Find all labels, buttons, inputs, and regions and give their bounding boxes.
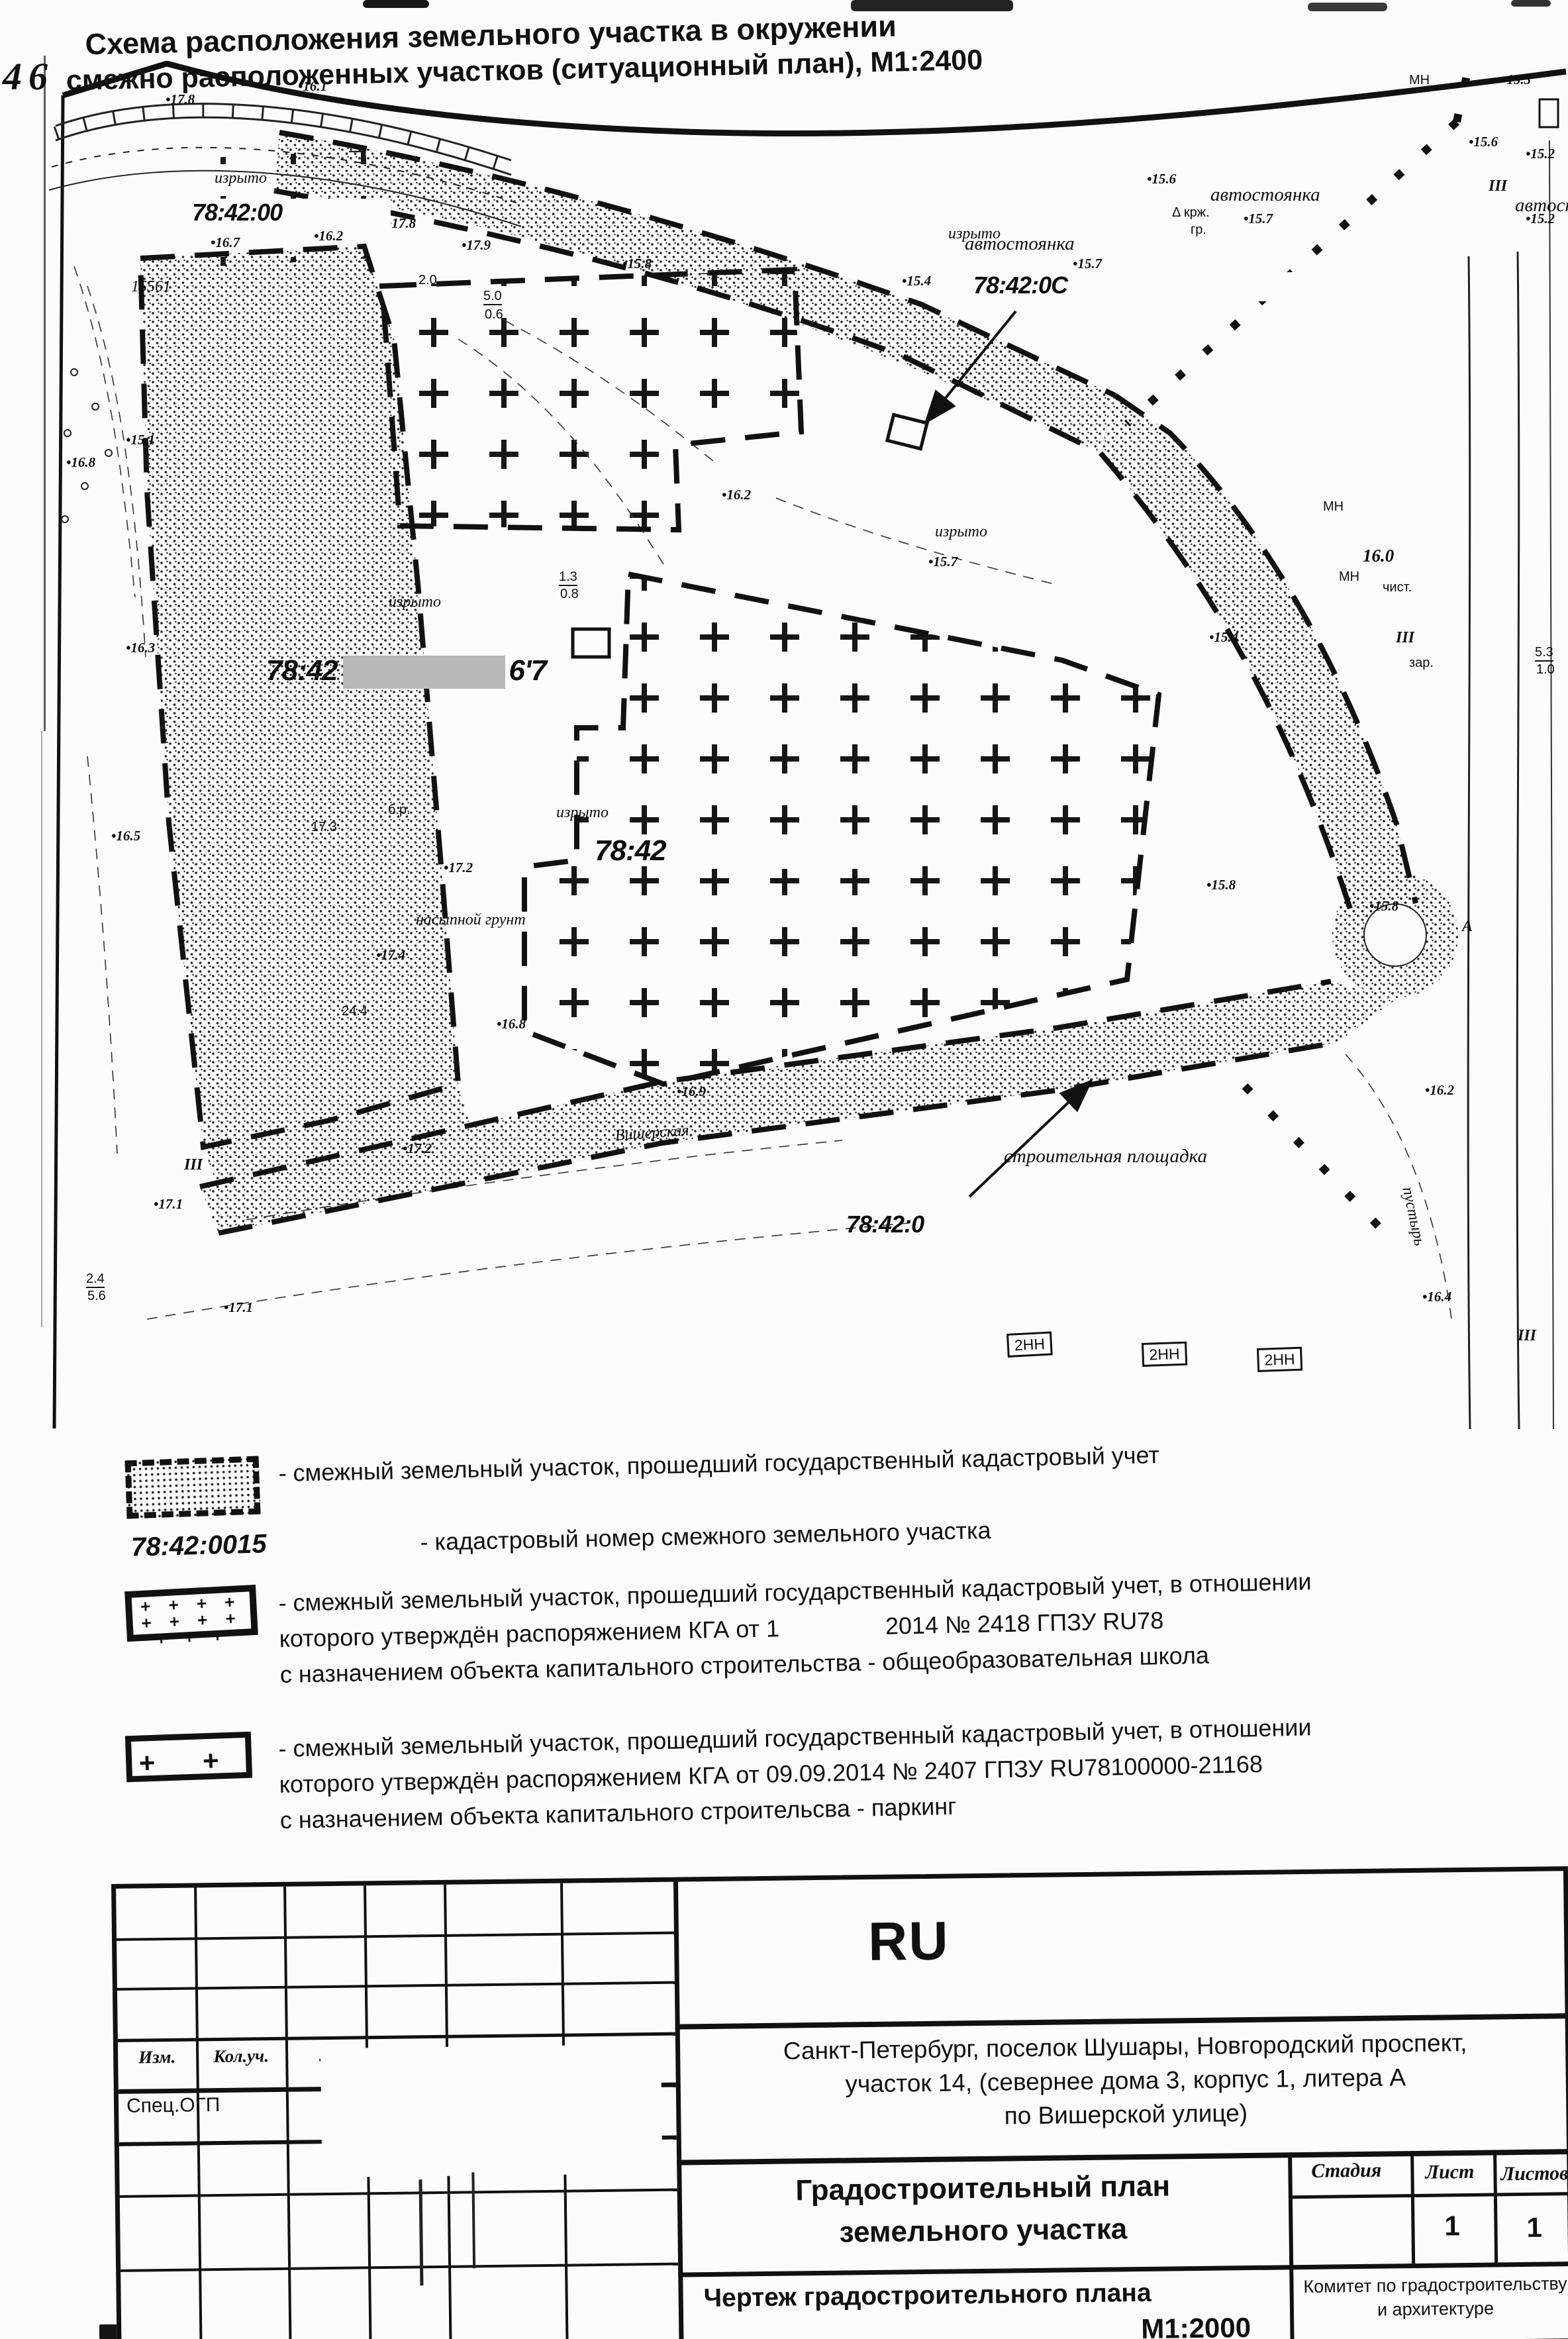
title-block: Изм.Кол.уч.Л№ докПодписьДата Спец.ОГП Пи… xyxy=(111,1866,1568,2339)
map-label: •15.8 xyxy=(1206,877,1236,893)
sheet-value: 1 xyxy=(1444,2210,1460,2242)
redacted-area xyxy=(671,836,890,869)
sheets-value: 1 xyxy=(1526,2212,1542,2244)
map-label: 5.0 xyxy=(483,289,502,305)
map-label: •16.8 xyxy=(66,454,95,471)
map-label: 78:42:0C xyxy=(973,272,1311,301)
map-label: •17.2 xyxy=(403,1140,432,1157)
map-label: зар. xyxy=(1409,656,1434,671)
map-label: МН xyxy=(1323,499,1344,515)
map-label: •16.8 xyxy=(497,1016,526,1032)
map-label: •15.8 xyxy=(1369,898,1398,915)
map-label: •17.2 xyxy=(444,860,473,876)
grid-line xyxy=(117,1981,675,1991)
map-label: 2НН xyxy=(1257,1347,1302,1372)
map-label: •15.6 xyxy=(1469,134,1498,150)
redacted-area xyxy=(343,656,505,689)
gpzu-document-number: RU xyxy=(868,1911,950,1973)
map-label: 2.0 xyxy=(418,273,437,288)
map-label: 78:42:00 xyxy=(188,199,391,226)
map-label: 78:426'7 xyxy=(266,654,546,689)
map-label: III xyxy=(184,1156,203,1174)
map-label: 2.4 xyxy=(86,1271,105,1288)
grid-line xyxy=(120,2189,677,2198)
map-label: автостоянка xyxy=(1210,184,1320,206)
grid-line xyxy=(1410,2151,1415,2264)
page-fold-line xyxy=(41,731,42,1327)
legend-cadastral-number-sample: 78:42:0015 xyxy=(130,1529,267,1562)
map-label: 1.0 xyxy=(1536,662,1555,677)
pen-stroke xyxy=(418,2179,423,2285)
map-label: Δ крж. xyxy=(1172,205,1210,221)
map-label: III xyxy=(1518,1327,1536,1345)
map-label: 16.0 xyxy=(1363,546,1394,566)
grid-line xyxy=(283,1887,292,2339)
map-label: 0.6 xyxy=(485,307,503,323)
grid-line xyxy=(117,1932,674,1941)
map-label: •16.3 xyxy=(126,640,155,656)
map-labels-layer: 15561•17.8•16.1МН•15.3•17.8•17.9•15.82.0… xyxy=(48,61,1567,1429)
map-label: чист. xyxy=(1383,580,1412,595)
map-label: изрыто xyxy=(556,804,609,822)
redacted-area xyxy=(287,201,387,226)
scan-artifact xyxy=(1308,3,1387,11)
map-label: насыпной грунт xyxy=(416,911,526,929)
legend-swatch-dots xyxy=(125,1456,261,1519)
legend-item-text: - смежный земельный участок, прошедший г… xyxy=(278,1558,1568,1693)
scanned-document-page: 46 Схема расположения земельного участка… xyxy=(0,0,1568,2339)
revision-column-header: Изм. xyxy=(138,2047,175,2068)
map-label: гр. xyxy=(1191,223,1206,238)
grid-line xyxy=(1493,2150,1498,2262)
map-label: 15561 xyxy=(131,278,171,296)
map-label: •15.7 xyxy=(928,554,957,570)
map-label: •15.2 xyxy=(1526,211,1555,227)
map-label: •16.2 xyxy=(722,487,751,503)
redacted-area xyxy=(977,1901,1548,1994)
spec-ogp-label: Спец.ОГП xyxy=(126,2094,220,2118)
map-label: •16.2 xyxy=(314,228,343,244)
drawing-scale: М1:2000 xyxy=(1141,2312,1251,2339)
map-label: •17.1 xyxy=(224,1299,253,1316)
map-label: МН xyxy=(1409,73,1430,88)
map-label: •16.5 xyxy=(111,828,140,844)
scan-artifact xyxy=(1511,0,1551,7)
map-label: 78:42 xyxy=(595,834,890,869)
sheets-label: Листов xyxy=(1500,2162,1568,2185)
map-label: 24.4 xyxy=(342,1004,367,1019)
document-title-line1: Градостроительный план xyxy=(677,2164,1289,2213)
page-number: 46 xyxy=(3,54,54,99)
map-label: •15.6 xyxy=(1147,171,1176,187)
map-label: 5.6 xyxy=(87,1289,106,1304)
grid-line xyxy=(121,2263,678,2272)
authority-line2: и архитектуре xyxy=(1293,2296,1568,2322)
map-label: 1.3 xyxy=(559,570,577,586)
grid-line xyxy=(118,2032,675,2042)
map-label: •16.7 xyxy=(211,234,240,251)
map-label: •15.8 xyxy=(622,256,652,272)
map-label: III xyxy=(1396,629,1414,647)
map-label: строительная площадка xyxy=(1004,1146,1207,1168)
map-label: изрыто xyxy=(948,225,1001,243)
map-label: 78:42:0 xyxy=(846,1211,924,1238)
revision-table-headers: Изм.Кол.уч.Л№ докПодписьДата xyxy=(116,1871,1563,1889)
legend-item-text: - смежный земельный участок, прошедший г… xyxy=(278,1428,1567,1491)
map-label: МН xyxy=(1339,570,1359,585)
map-label: •16.9 xyxy=(677,1083,706,1100)
map-label: •16.2 xyxy=(1425,1082,1454,1099)
map-label: 2НН xyxy=(1006,1331,1053,1358)
map-label: •15.7 xyxy=(1073,256,1102,272)
redacted-area xyxy=(320,2044,662,2177)
map-label: •17.1 xyxy=(154,1196,183,1213)
page-fold-line xyxy=(44,56,46,731)
map-label: 0.8 xyxy=(560,587,579,602)
grid-line xyxy=(1289,2192,1568,2199)
legend-item-text: - смежный земельный участок, прошедший г… xyxy=(278,1704,1568,1838)
legend-swatch-plus-many: + + + + + + + + + + + xyxy=(124,1585,258,1642)
map-label: •17.9 xyxy=(462,237,491,254)
authority-line1: Комитет по градостроительству xyxy=(1293,2272,1568,2298)
legend-item-text: - кадастровый номер смежного земельного … xyxy=(420,1497,1568,1560)
map-label: •15.4 xyxy=(902,273,931,289)
legend-swatch-plus-two: + + xyxy=(125,1732,252,1783)
map-label: пустырь xyxy=(1398,1185,1428,1247)
site-plan-map: 15561•17.8•16.1МН•15.3•17.8•17.9•15.82.0… xyxy=(48,61,1567,1429)
revision-column-header: Кол.уч. xyxy=(213,2046,269,2067)
stage-label: Стадия xyxy=(1311,2160,1381,2183)
scan-artifact xyxy=(363,0,429,8)
map-label: 2НН xyxy=(1142,1342,1187,1367)
map-label: •15.4 xyxy=(1209,629,1238,646)
map-label: А xyxy=(1462,918,1473,936)
map-label: •15.7 xyxy=(1244,211,1273,227)
map-label: •15.1 xyxy=(126,432,155,448)
sheet-label: Лист xyxy=(1425,2161,1474,2184)
map-label: •17.4 xyxy=(376,947,405,964)
map-label: •15.2 xyxy=(1526,146,1555,162)
redacted-area xyxy=(1073,272,1311,301)
redacted-area xyxy=(1163,1605,1449,1633)
redacted-area xyxy=(779,1617,886,1641)
map-label: •16.4 xyxy=(1422,1289,1451,1305)
document-title-line2: земельного участка xyxy=(677,2207,1289,2255)
map-label: изрыто xyxy=(215,170,267,187)
map-label: •17.8 xyxy=(387,215,416,232)
drawing-title: Чертеж градостроительного плана xyxy=(703,2279,1151,2313)
pen-stroke xyxy=(471,2172,475,2268)
map-label: б.р. xyxy=(388,803,411,818)
map-label: Вишерская xyxy=(614,1122,689,1145)
map-label: •15.3 xyxy=(1502,72,1531,88)
map-label: III xyxy=(1489,177,1507,195)
map-label: 5.3 xyxy=(1535,645,1553,662)
map-label: изрыто xyxy=(389,593,441,611)
map-label: 17.3 xyxy=(311,820,337,835)
map-label: изрыто xyxy=(935,523,987,541)
